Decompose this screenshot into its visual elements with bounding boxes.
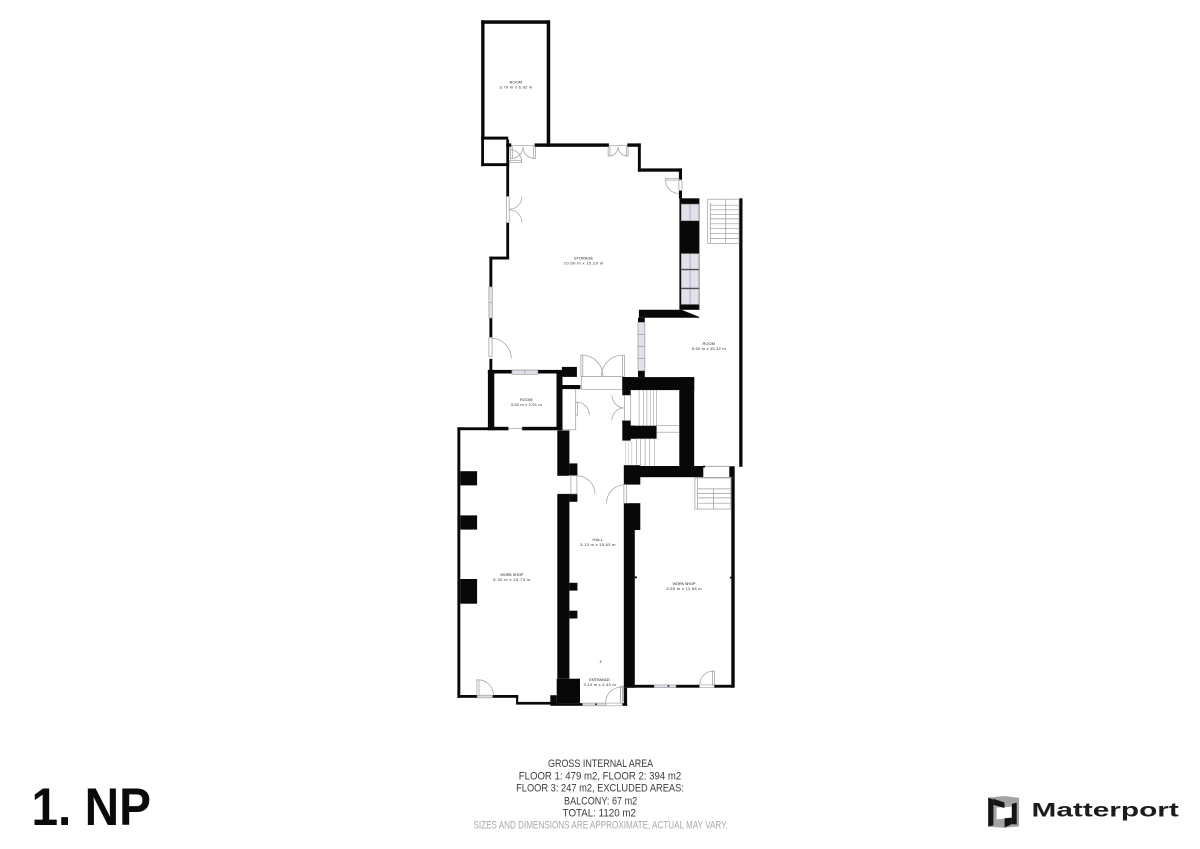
svg-text:10.60 m x 15.29 m: 10.60 m x 15.29 m [564,261,604,266]
svg-text:3.14 m x 2.43 m: 3.14 m x 2.43 m [583,682,616,687]
svg-text:FLOOR 3: 247 m2, EXCLUDED AREA: FLOOR 3: 247 m2, EXCLUDED AREAS: [516,783,684,795]
svg-text:6.30 m x 15.73 m: 6.30 m x 15.73 m [493,577,531,582]
svg-text:5.92 m x 15.32 m: 5.92 m x 15.32 m [692,346,727,351]
svg-text:1. NP: 1. NP [32,777,151,837]
svg-text:SIZES AND DIMENSIONS ARE APPRO: SIZES AND DIMENSIONS ARE APPROXIMATE, AC… [473,820,727,833]
svg-text:3.13 m x 15.63 m: 3.13 m x 15.63 m [580,542,616,547]
svg-text:Matterport: Matterport [1032,800,1180,821]
svg-text:GROSS INTERNAL AREA: GROSS INTERNAL AREA [548,758,653,770]
svg-text:BALCONY: 67 m2: BALCONY: 67 m2 [564,796,638,808]
svg-text:TOTAL: 1120 m2: TOTAL: 1120 m2 [563,808,636,820]
svg-text:3.82 m x 2.91 m: 3.82 m x 2.91 m [511,402,543,407]
svg-text:3.70 m x 6.92 m: 3.70 m x 6.92 m [499,85,533,90]
svg-text:5.55 m x 11.98 m: 5.55 m x 11.98 m [666,586,702,591]
svg-text:FLOOR 1: 479 m2, FLOOR 2: 394: FLOOR 1: 479 m2, FLOOR 2: 394 m2 [519,771,682,783]
